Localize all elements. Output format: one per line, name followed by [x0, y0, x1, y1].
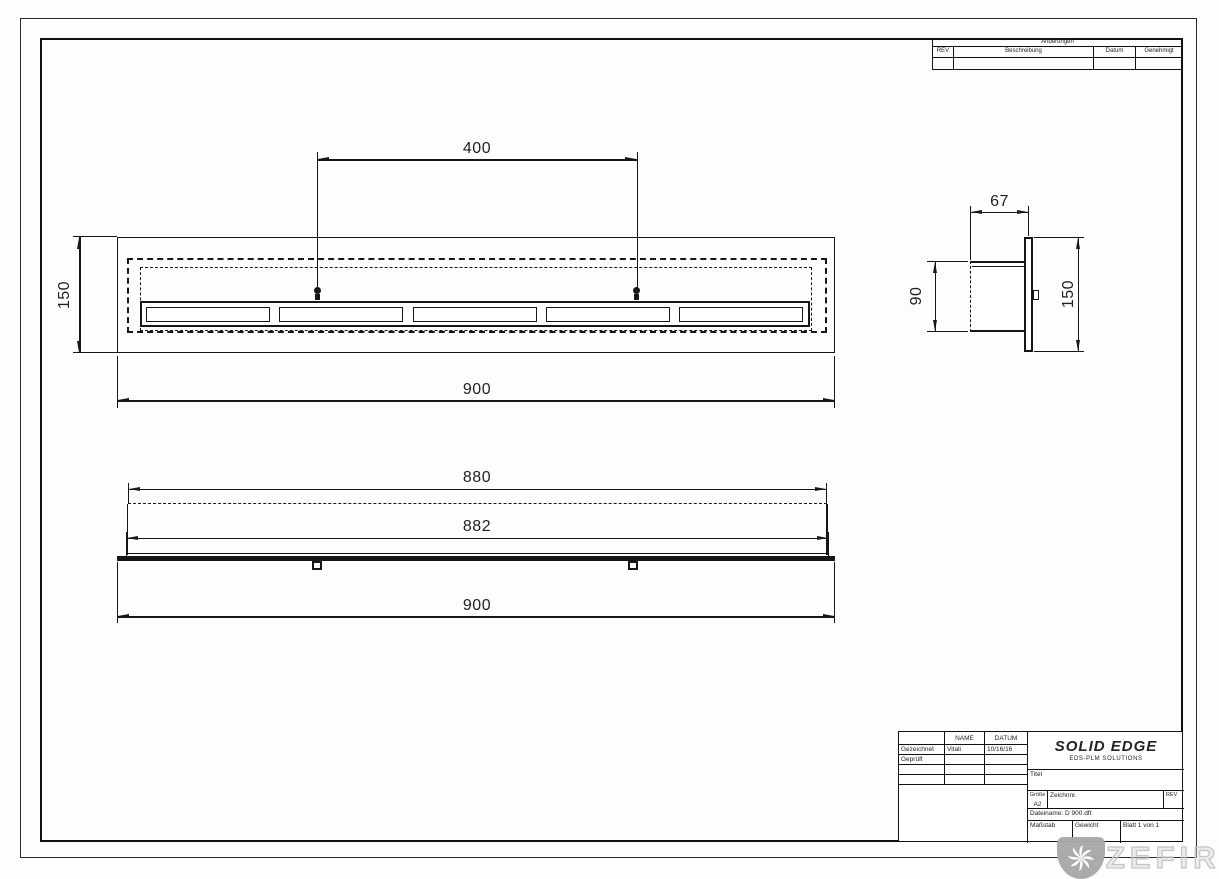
- bottom-view-body-bottom: [128, 553, 827, 554]
- revision-empty-cell: [933, 58, 954, 70]
- titleblock-checked-date: [985, 755, 1028, 765]
- titleblock-empty-cell: [899, 775, 945, 785]
- arrowhead: [1076, 340, 1080, 351]
- side-view-body: [970, 261, 1024, 332]
- dimension-line: [317, 159, 637, 160]
- bottom-view-hidden-top: [128, 503, 827, 505]
- slot: [279, 307, 403, 322]
- revision-col-rev: REV: [933, 47, 954, 58]
- dim-bottom-outer-width-label: 882: [447, 518, 507, 536]
- zefire-watermark-text: ZEFIRE: [1106, 840, 1219, 876]
- solid-edge-logo: SOLID EDGE: [1030, 738, 1182, 755]
- pinwheel-icon: [1065, 842, 1097, 874]
- arrowhead: [77, 341, 81, 352]
- extension-line: [927, 331, 968, 332]
- slot: [413, 307, 537, 322]
- title-block: NAME DATUM Gezeichnet Vitali 10/16/16 Ge…: [898, 731, 1183, 842]
- arrowhead: [1076, 238, 1080, 249]
- dim-side-body-height-label: 90: [908, 276, 924, 316]
- dimension-line: [117, 400, 835, 401]
- dimension-line: [126, 538, 829, 539]
- extension-line: [826, 483, 827, 504]
- titleblock-filename-cell: Dateiname: D 900.dft: [1028, 809, 1184, 821]
- revision-col-description: Beschreibung: [954, 47, 1094, 58]
- arrowhead: [129, 487, 140, 491]
- side-view-body-inner-line: [972, 266, 1024, 267]
- zefire-logo-badge: [1057, 837, 1105, 879]
- revision-col-approved: Genehmigt: [1136, 47, 1182, 58]
- arrowhead: [933, 262, 937, 273]
- extension-line: [834, 562, 835, 623]
- titleblock-empty-cell: [899, 765, 945, 775]
- front-view-slot-row: [140, 301, 810, 327]
- solid-edge-subtitle: EDS-PLM SOLUTIONS: [1030, 756, 1182, 762]
- dim-bottom-width-label: 900: [447, 597, 507, 615]
- size-label: Größe: [1028, 792, 1047, 800]
- extension-line: [317, 152, 318, 288]
- titleblock-title-cell: Titel: [1028, 770, 1184, 791]
- pin-stem: [634, 294, 639, 300]
- titleblock-checked-label: Geprüft: [899, 755, 945, 765]
- dim-pin-spacing-label: 400: [447, 140, 507, 158]
- titleblock-date-header: DATUM: [985, 732, 1028, 745]
- mounting-pin: [632, 287, 641, 301]
- titleblock-drawing-number-cell: Zeichnnr.: [1048, 791, 1164, 809]
- slot: [679, 307, 803, 322]
- titleblock-corner-cell: [899, 732, 945, 745]
- revision-empty-cell: [1136, 58, 1182, 70]
- titleblock-brand-cell: SOLID EDGE EDS-PLM SOLUTIONS: [1028, 732, 1184, 770]
- titleblock-drawn-label: Gezeichnet: [899, 745, 945, 755]
- titleblock-empty-cell: [985, 775, 1028, 785]
- drawing-sheet: Änderungen REV Beschreibung Datum Genehm…: [0, 0, 1219, 879]
- arrowhead: [77, 238, 81, 249]
- arrowhead: [817, 536, 828, 540]
- titleblock-name-header: NAME: [945, 732, 985, 745]
- bottom-view-clip: [628, 561, 638, 570]
- arrowhead: [823, 398, 834, 402]
- arrowhead: [625, 157, 636, 161]
- slot: [146, 307, 270, 322]
- arrowhead: [318, 157, 329, 161]
- dim-front-height-label: 150: [56, 273, 72, 317]
- dimension-line: [1078, 237, 1079, 352]
- dimension-line: [128, 489, 827, 490]
- titleblock-notes-area: [899, 785, 1028, 843]
- arrowhead: [118, 614, 129, 618]
- extension-line: [970, 206, 971, 260]
- arrowhead: [118, 398, 129, 402]
- extension-line: [1034, 351, 1084, 352]
- revision-empty-cell: [954, 58, 1094, 70]
- titleblock-checked-name: [945, 755, 985, 765]
- dim-side-depth-label: 67: [970, 193, 1029, 211]
- titleblock-empty-cell: [945, 775, 985, 785]
- arrowhead: [933, 320, 937, 331]
- titleblock-drawn-name: Vitali: [945, 745, 985, 755]
- dim-bottom-body-width-label: 880: [447, 469, 507, 487]
- side-view-flange: [1024, 237, 1033, 352]
- extension-line: [828, 532, 829, 558]
- dimension-line: [117, 616, 835, 617]
- revision-table-title: Änderungen: [933, 38, 1182, 47]
- pin-stem: [315, 294, 320, 300]
- side-view-clip: [1033, 290, 1039, 300]
- arrowhead: [815, 487, 826, 491]
- titleblock-rev-cell: REV: [1164, 791, 1184, 809]
- dimension-line: [79, 237, 80, 353]
- extension-line: [637, 152, 638, 288]
- pin-head: [633, 287, 640, 294]
- revision-table: Änderungen REV Beschreibung Datum Genehm…: [932, 38, 1183, 70]
- titleblock-empty-cell: [985, 765, 1028, 775]
- revision-empty-cell: [1094, 58, 1136, 70]
- dim-side-flange-height-label: 150: [1060, 272, 1076, 316]
- slot: [546, 307, 670, 322]
- mounting-pin: [313, 287, 322, 301]
- dim-front-width-label: 900: [447, 381, 507, 399]
- titleblock-empty-cell: [945, 765, 985, 775]
- titleblock-size-cell: Größe A2: [1028, 791, 1048, 809]
- pin-head: [314, 287, 321, 294]
- bottom-view-flange-plate: [117, 556, 835, 561]
- arrowhead: [823, 614, 834, 618]
- bottom-view-clip: [312, 561, 322, 570]
- titleblock-drawn-date: 10/16/16: [985, 745, 1028, 755]
- size-value: A2: [1028, 800, 1047, 809]
- bottom-view-left-edge: [127, 504, 128, 555]
- arrowhead: [127, 536, 138, 540]
- bottom-view-right-edge: [826, 504, 827, 555]
- revision-col-date: Datum: [1094, 47, 1136, 58]
